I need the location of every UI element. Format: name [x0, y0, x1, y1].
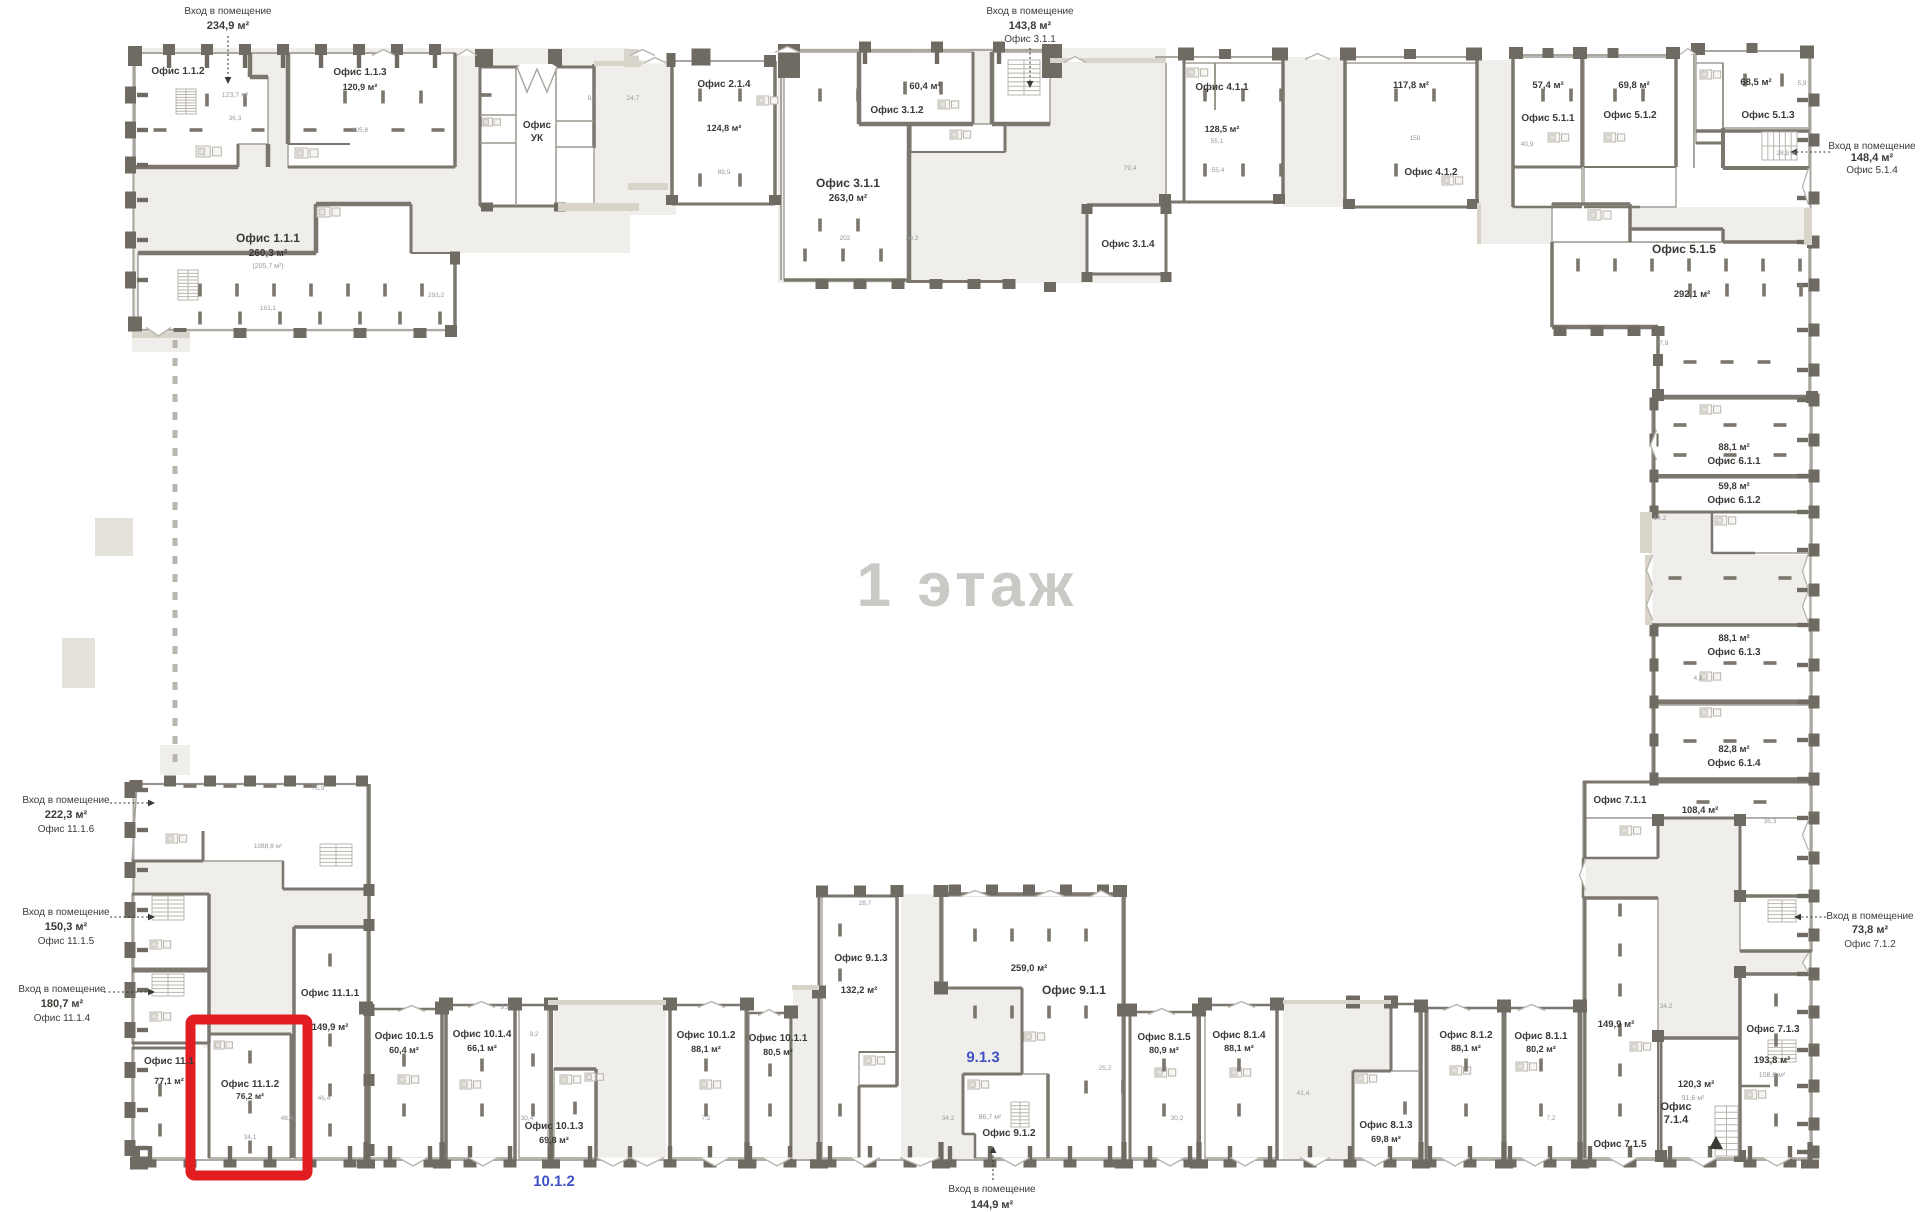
svg-text:Офис 3.1.2: Офис 3.1.2: [870, 105, 924, 116]
svg-text:117,8 м²: 117,8 м²: [1393, 80, 1429, 91]
svg-text:148,4 м²: 148,4 м²: [1851, 152, 1894, 164]
svg-text:Вход в помещение: Вход в помещение: [18, 984, 106, 995]
svg-text:202: 202: [840, 235, 851, 242]
svg-text:Офис 11.1.4: Офис 11.1.4: [34, 1013, 91, 1024]
svg-text:10.1.2: 10.1.2: [533, 1173, 575, 1190]
svg-text:Офис 11.1.5: Офис 11.1.5: [38, 936, 95, 947]
svg-text:88,1 м²: 88,1 м²: [1224, 1043, 1254, 1053]
svg-text:Вход в помещение: Вход в помещение: [184, 6, 272, 17]
svg-text:120,9 м²: 120,9 м²: [343, 82, 378, 92]
svg-text:69,8 м²: 69,8 м²: [539, 1135, 569, 1145]
svg-text:5,9: 5,9: [1797, 80, 1806, 87]
svg-text:Офис 6.1.1: Офис 6.1.1: [1707, 456, 1761, 467]
svg-text:Офис 8.1.2: Офис 8.1.2: [1439, 1030, 1493, 1041]
svg-text:7.1.4: 7.1.4: [1664, 1114, 1689, 1126]
svg-text:Офис 1.1.3: Офис 1.1.3: [333, 67, 387, 78]
svg-text:Вход в помещение: Вход в помещение: [22, 795, 110, 806]
svg-text:76,9: 76,9: [312, 785, 325, 792]
svg-text:69,8 м²: 69,8 м²: [1371, 1134, 1401, 1144]
svg-text:Офис 7.1.2: Офис 7.1.2: [1844, 939, 1896, 950]
svg-text:57,4 м²: 57,4 м²: [1532, 80, 1563, 91]
svg-text:123,7 м²: 123,7 м²: [222, 92, 249, 99]
svg-text:Офис: Офис: [523, 120, 552, 131]
svg-text:260,3 м²: 260,3 м²: [249, 248, 288, 259]
svg-text:9,2: 9,2: [587, 95, 596, 102]
svg-text:86,7 м²: 86,7 м²: [979, 1114, 1002, 1121]
svg-text:Офис 8.1.4: Офис 8.1.4: [1212, 1030, 1266, 1041]
svg-text:Офис 10.1.2: Офис 10.1.2: [677, 1030, 736, 1041]
svg-text:Вход в помещение: Вход в помещение: [948, 1184, 1036, 1195]
svg-text:48,4: 48,4: [281, 1115, 294, 1122]
svg-text:88,1 м²: 88,1 м²: [1718, 633, 1749, 644]
svg-text:Вход в помещение: Вход в помещение: [22, 907, 110, 918]
svg-text:76,2 м²: 76,2 м²: [236, 1091, 264, 1101]
svg-text:34,2: 34,2: [1660, 1003, 1673, 1010]
svg-text:80,9 м²: 80,9 м²: [1149, 1045, 1179, 1055]
svg-text:Офис 4.1.1: Офис 4.1.1: [1195, 82, 1249, 93]
svg-text:Вход в помещение: Вход в помещение: [1828, 141, 1916, 152]
svg-text:108,8 м²: 108,8 м²: [1759, 1072, 1786, 1079]
svg-text:Офис 5.1.3: Офис 5.1.3: [1741, 110, 1795, 121]
svg-text:132,2 м²: 132,2 м²: [841, 985, 878, 996]
svg-text:Офис 1.1.1: Офис 1.1.1: [236, 231, 300, 245]
svg-text:Офис 9.1.2: Офис 9.1.2: [982, 1128, 1036, 1139]
svg-text:Офис 11.1.1: Офис 11.1.1: [301, 988, 360, 999]
svg-text:30,2: 30,2: [1171, 1115, 1184, 1122]
svg-text:36,3: 36,3: [1764, 818, 1777, 825]
svg-text:Офис 4.1.2: Офис 4.1.2: [1404, 167, 1458, 178]
svg-text:9,2: 9,2: [529, 1031, 538, 1038]
svg-text:Вход в помещение: Вход в помещение: [1826, 911, 1914, 922]
svg-text:1088,8 м²: 1088,8 м²: [254, 843, 283, 850]
svg-text:28,7: 28,7: [859, 900, 872, 907]
svg-text:222,3 м²: 222,3 м²: [45, 809, 88, 821]
svg-text:128,5 м²: 128,5 м²: [1205, 124, 1240, 134]
svg-text:УК: УК: [531, 133, 544, 144]
svg-text:9,2: 9,2: [500, 1004, 509, 1011]
svg-text:55,4: 55,4: [1212, 167, 1225, 174]
svg-text:Офис 3.1.4: Офис 3.1.4: [1101, 239, 1155, 250]
svg-text:120,3 м²: 120,3 м²: [1678, 1079, 1715, 1090]
svg-text:Офис: Офис: [1660, 1101, 1691, 1113]
svg-text:Офис 7.1.5: Офис 7.1.5: [1593, 1139, 1647, 1150]
svg-text:Офис 10.1.5: Офис 10.1.5: [375, 1031, 434, 1042]
svg-text:89,9: 89,9: [718, 169, 731, 176]
svg-text:150: 150: [1410, 135, 1421, 142]
svg-text:Офис 7.1.3: Офис 7.1.3: [1746, 1024, 1800, 1035]
svg-text:4,1: 4,1: [1693, 675, 1702, 682]
svg-text:Вход в помещение: Вход в помещение: [986, 6, 1074, 17]
svg-text:Офис 7.1.1: Офис 7.1.1: [1593, 795, 1647, 806]
svg-text:73,8 м²: 73,8 м²: [1852, 924, 1889, 936]
svg-text:259,0 м²: 259,0 м²: [1011, 963, 1048, 974]
svg-text:Офис 11.1: Офис 11.1: [144, 1056, 194, 1067]
svg-text:77,1 м²: 77,1 м²: [154, 1076, 184, 1086]
svg-text:79,4: 79,4: [1124, 165, 1137, 172]
svg-text:34,2: 34,2: [942, 1115, 955, 1122]
svg-text:Офис 10.1.1: Офис 10.1.1: [749, 1033, 808, 1044]
svg-text:9.1.3: 9.1.3: [966, 1049, 999, 1066]
svg-text:Офис 3.1.1: Офис 3.1.1: [816, 176, 880, 190]
svg-text:14,2: 14,2: [1654, 515, 1667, 522]
svg-text:Офис 5.1.4: Офис 5.1.4: [1846, 165, 1898, 176]
svg-text:34,1: 34,1: [244, 1134, 257, 1141]
svg-text:Офис 5.1.5: Офис 5.1.5: [1652, 242, 1716, 256]
svg-text:80,2 м²: 80,2 м²: [1526, 1044, 1556, 1054]
svg-text:40,9: 40,9: [1521, 141, 1534, 148]
svg-text:88,1 м²: 88,1 м²: [1718, 442, 1749, 453]
svg-text:77,9: 77,9: [1656, 340, 1669, 347]
svg-text:149,9 м²: 149,9 м²: [1598, 1019, 1635, 1030]
svg-text:46,4: 46,4: [318, 1095, 331, 1102]
svg-text:263,0 м²: 263,0 м²: [829, 193, 868, 204]
svg-text:150,3 м²: 150,3 м²: [45, 921, 88, 933]
svg-text:Офис 6.1.2: Офис 6.1.2: [1707, 495, 1761, 506]
svg-text:(205,7 м²): (205,7 м²): [252, 262, 283, 270]
svg-text:88,1 м²: 88,1 м²: [1451, 1043, 1481, 1053]
svg-text:293,2: 293,2: [428, 292, 445, 299]
svg-text:28,9 м²: 28,9 м²: [1776, 150, 1798, 157]
svg-text:36,3: 36,3: [229, 115, 242, 122]
svg-text:144,9 м²: 144,9 м²: [971, 1199, 1014, 1211]
svg-text:1 этаж: 1 этаж: [857, 551, 1078, 620]
svg-text:Офис 3.1.1: Офис 3.1.1: [1004, 34, 1056, 45]
svg-text:108,4 м²: 108,4 м²: [1682, 805, 1719, 816]
svg-text:Офис 10.1.4: Офис 10.1.4: [453, 1029, 512, 1040]
svg-text:105,8: 105,8: [352, 127, 369, 134]
svg-text:Офис 6.1.3: Офис 6.1.3: [1707, 647, 1761, 658]
svg-text:193,8 м²: 193,8 м²: [1754, 1055, 1791, 1066]
svg-text:Офис 8.1.3: Офис 8.1.3: [1359, 1120, 1413, 1131]
svg-text:7,2: 7,2: [1546, 1115, 1555, 1122]
svg-text:Офис 8.1.5: Офис 8.1.5: [1137, 1032, 1191, 1043]
svg-text:Офис 2.1.4: Офис 2.1.4: [697, 79, 751, 90]
svg-text:Офис 8.1.1: Офис 8.1.1: [1514, 1031, 1568, 1042]
svg-text:25,2: 25,2: [1099, 1065, 1112, 1072]
svg-text:Офис 9.1.1: Офис 9.1.1: [1042, 983, 1106, 997]
svg-text:180,7 м²: 180,7 м²: [41, 998, 84, 1010]
svg-text:Офис 9.1.3: Офис 9.1.3: [834, 953, 888, 964]
svg-text:124,8 м²: 124,8 м²: [707, 123, 742, 133]
svg-text:60,4 м²: 60,4 м²: [389, 1045, 419, 1055]
svg-text:88,1 м²: 88,1 м²: [691, 1044, 721, 1054]
svg-text:30,2: 30,2: [906, 235, 919, 242]
svg-text:Офис 11.1.2: Офис 11.1.2: [221, 1079, 280, 1090]
svg-text:55,1: 55,1: [1211, 138, 1224, 145]
svg-text:Офис 5.1.2: Офис 5.1.2: [1603, 110, 1657, 121]
svg-text:Офис 5.1.1: Офис 5.1.1: [1521, 113, 1575, 124]
svg-text:Офис 6.1.4: Офис 6.1.4: [1707, 758, 1761, 769]
svg-text:41,4: 41,4: [1297, 1090, 1310, 1097]
svg-text:80,5 м²: 80,5 м²: [763, 1047, 793, 1057]
svg-text:234,9 м²: 234,9 м²: [207, 20, 250, 32]
svg-text:161,1: 161,1: [260, 305, 277, 312]
svg-text:66,1 м²: 66,1 м²: [467, 1043, 497, 1053]
svg-text:24,7: 24,7: [627, 95, 640, 102]
svg-text:Офис 10.1.3: Офис 10.1.3: [525, 1121, 584, 1132]
svg-text:60,4 м²: 60,4 м²: [909, 81, 940, 92]
svg-text:7,2: 7,2: [701, 1115, 710, 1122]
svg-text:143,8 м²: 143,8 м²: [1009, 20, 1052, 32]
svg-text:30,4: 30,4: [521, 1115, 534, 1122]
svg-text:149,9 м²: 149,9 м²: [312, 1022, 349, 1033]
svg-text:68,5 м²: 68,5 м²: [1740, 77, 1771, 88]
svg-text:82,8 м²: 82,8 м²: [1718, 744, 1749, 755]
svg-text:69,8 м²: 69,8 м²: [1618, 80, 1649, 91]
svg-text:Офис 11.1.6: Офис 11.1.6: [38, 824, 95, 835]
svg-text:Офис 1.1.2: Офис 1.1.2: [151, 66, 205, 77]
svg-text:59,8 м²: 59,8 м²: [1718, 481, 1749, 492]
svg-text:292,1 м²: 292,1 м²: [1674, 289, 1711, 300]
